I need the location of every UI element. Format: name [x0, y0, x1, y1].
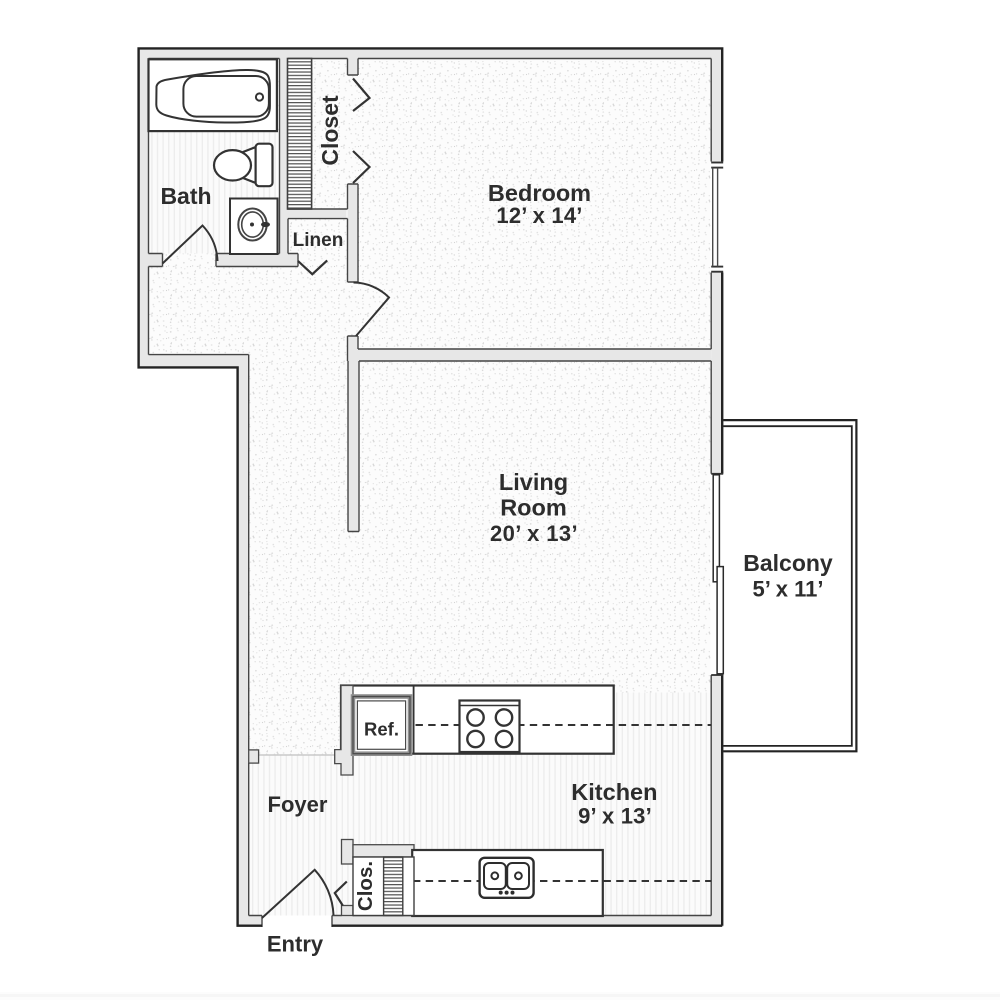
svg-text:5’ x 11’: 5’ x 11’: [753, 577, 824, 602]
svg-text:Living: Living: [499, 469, 568, 495]
svg-text:Clos.: Clos.: [354, 861, 377, 911]
svg-text:Ref.: Ref.: [364, 719, 399, 740]
svg-text:20’ x 13’: 20’ x 13’: [490, 521, 578, 546]
svg-text:Bath: Bath: [160, 183, 211, 209]
svg-text:Closet: Closet: [317, 95, 343, 166]
svg-text:Balcony: Balcony: [743, 550, 833, 576]
svg-text:12’ x 14’: 12’ x 14’: [496, 203, 582, 228]
svg-text:Entry: Entry: [267, 932, 324, 957]
svg-text:Kitchen: Kitchen: [571, 779, 657, 805]
svg-text:Foyer: Foyer: [268, 792, 328, 817]
svg-text:9’ x 13’: 9’ x 13’: [578, 804, 652, 829]
svg-text:Linen: Linen: [293, 230, 344, 251]
svg-text:Room: Room: [500, 495, 567, 521]
